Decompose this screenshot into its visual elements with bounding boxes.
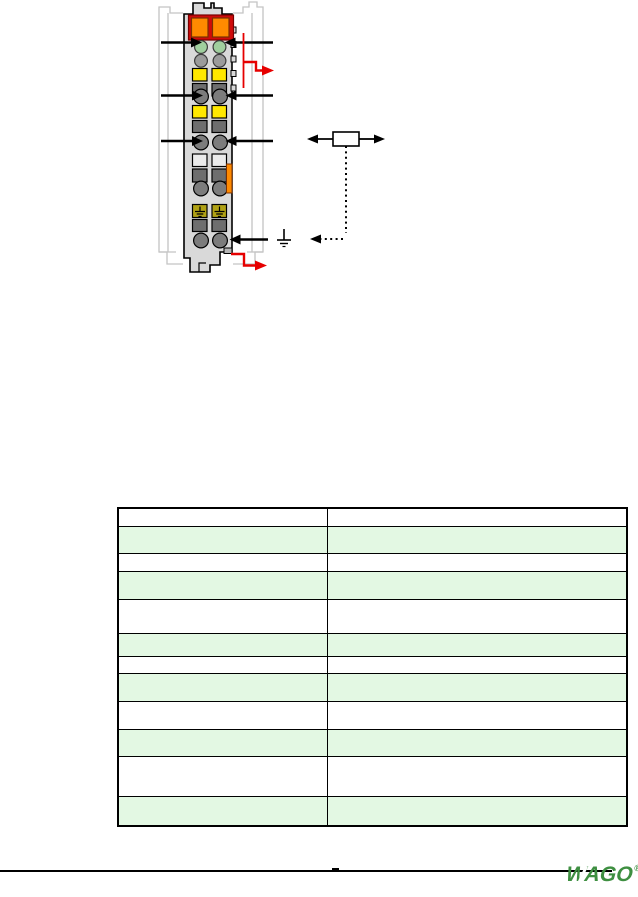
wago-logo-text: WAGO: [565, 863, 634, 886]
clamp-opening: [213, 135, 228, 150]
table-cell: [328, 527, 626, 553]
clamp-opening: [213, 233, 228, 248]
table-cell: [328, 634, 626, 656]
slot-yellow: [193, 106, 208, 119]
slot-dark: [212, 169, 227, 182]
table-cell: [328, 702, 626, 729]
table-row: [119, 509, 626, 527]
slot-dark: [193, 220, 208, 232]
table-row: [119, 527, 626, 554]
clamp-opening: [194, 233, 209, 248]
bottom-contact: [224, 248, 232, 254]
clamp-opening: [213, 181, 228, 196]
table-row: [119, 757, 626, 797]
table-cell: [328, 757, 626, 796]
latch-puller-right: [213, 18, 230, 37]
arrowhead-left-icon: [307, 135, 318, 144]
table-cell: [119, 634, 328, 656]
table-row: [119, 674, 626, 702]
spec-table: [117, 507, 628, 827]
table-cell: [119, 674, 328, 701]
document-page: WAGO®: [0, 0, 638, 897]
status-led-gray: [195, 54, 208, 67]
table-row: [119, 600, 626, 634]
table-row: [119, 554, 626, 572]
arrowhead-left-icon: [310, 235, 321, 244]
table-cell: [328, 730, 626, 756]
ground-icon: [277, 229, 291, 247]
table-row: [119, 702, 626, 730]
table-cell: [119, 554, 328, 571]
latch-puller-left: [192, 18, 209, 37]
resistor-box-icon: [333, 132, 359, 146]
table-cell: [328, 674, 626, 701]
arrowhead-right-icon: [255, 261, 267, 271]
slot-dark: [193, 121, 208, 133]
clamp-opening: [194, 181, 209, 196]
slot-yellow: [212, 106, 227, 119]
table-cell: [328, 572, 626, 599]
table-cell: [328, 509, 626, 526]
table-cell: [328, 657, 626, 673]
table-row: [119, 572, 626, 600]
arrowhead-right-icon: [262, 66, 274, 76]
footer-rule: [0, 870, 612, 872]
table-cell: [328, 600, 626, 633]
table-row: [119, 797, 626, 825]
slot-dark: [212, 121, 227, 133]
slot-dark: [212, 220, 227, 232]
table-cell: [119, 657, 328, 673]
table-cell: [119, 509, 328, 526]
table-row: [119, 730, 626, 757]
registered-trademark: ®: [634, 863, 638, 873]
slot-white: [212, 154, 227, 167]
slot-yellow: [193, 69, 208, 82]
slot-white: [193, 154, 208, 167]
table-cell: [119, 730, 328, 756]
slot-dark: [193, 169, 208, 182]
wago-logo: WAGO®: [565, 863, 638, 889]
slot-yellow: [212, 69, 227, 82]
table-cell: [119, 572, 328, 599]
terminal-block-diagram: [0, 0, 400, 290]
footer-tick: [332, 868, 339, 871]
arrowhead-right-icon: [374, 135, 385, 144]
table-cell: [119, 797, 328, 825]
table-cell: [119, 702, 328, 729]
table-cell: [119, 757, 328, 796]
coding-tab-orange: [227, 164, 233, 193]
table-cell: [119, 600, 328, 633]
status-led-green: [213, 41, 226, 54]
table-cell: [119, 527, 328, 553]
status-led-gray: [213, 54, 226, 67]
red-step-arrow-top: [244, 62, 263, 71]
sensor-symbol: [307, 132, 385, 244]
table-row: [119, 634, 626, 657]
clamp-opening: [213, 89, 228, 104]
table-row: [119, 657, 626, 674]
table-cell: [328, 797, 626, 825]
table-cell: [328, 554, 626, 571]
